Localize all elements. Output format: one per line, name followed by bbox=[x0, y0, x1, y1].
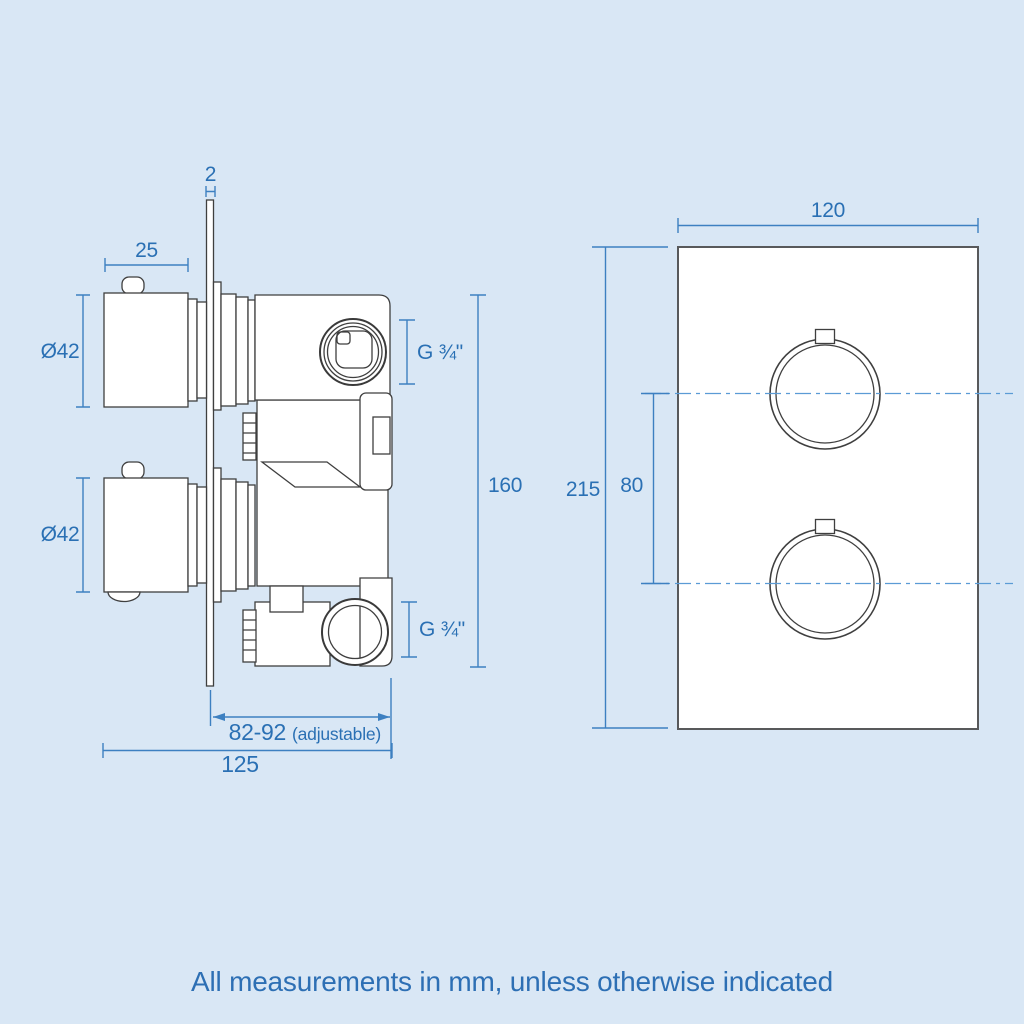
front-plate bbox=[678, 247, 978, 729]
wall-plate-side bbox=[207, 200, 214, 686]
dim-outlet-thread-top: G ¾" bbox=[399, 320, 463, 384]
bottom-escutcheon bbox=[214, 468, 222, 602]
dim-knob-diameter-bottom: Ø42 bbox=[41, 478, 90, 592]
threaded-adjuster-bottom bbox=[243, 610, 256, 662]
threaded-adjuster-top bbox=[243, 413, 256, 460]
dimension-drawing: 2 25 Ø42 Ø42 G ¾" G ¾" 160 bbox=[0, 0, 1024, 1024]
front-bottom-handle-tab bbox=[816, 520, 835, 534]
top-knob-button bbox=[122, 277, 144, 294]
dim-plate-thickness-value: 2 bbox=[205, 163, 216, 186]
dim-plate-width-value: 120 bbox=[811, 199, 845, 222]
dim-knob-diameter-top: Ø42 bbox=[41, 295, 90, 407]
front-top-handle-tab bbox=[816, 330, 835, 344]
outlet-port-bottom bbox=[322, 599, 388, 665]
top-escutcheon bbox=[214, 282, 222, 410]
dim-recess-depth-note: (adjustable) bbox=[292, 724, 381, 744]
dim-knob-diameter-bottom-value: Ø42 bbox=[41, 523, 80, 546]
dim-valve-height: 160 bbox=[470, 295, 522, 667]
dim-knob-depth-value: 25 bbox=[135, 239, 158, 262]
top-knob bbox=[104, 293, 188, 407]
top-knob-assembly bbox=[104, 277, 255, 410]
side-view-drawing: 2 25 Ø42 Ø42 G ¾" G ¾" 160 bbox=[41, 163, 523, 777]
dim-valve-height-value: 160 bbox=[488, 474, 522, 497]
dim-outlet-thread-top-value: G ¾" bbox=[417, 341, 463, 364]
front-view-drawing: 120 215 80 bbox=[566, 199, 1013, 729]
dim-knob-diameter-top-value: Ø42 bbox=[41, 340, 80, 363]
dim-handle-spacing: 80 bbox=[620, 394, 669, 584]
dim-handle-spacing-value: 80 bbox=[620, 474, 643, 497]
dim-overall-depth-value: 125 bbox=[221, 751, 258, 777]
measurements-note: All measurements in mm, unless otherwise… bbox=[0, 966, 1024, 998]
dim-outlet-thread-bottom-value: G ¾" bbox=[419, 618, 465, 641]
bottom-knob-button bbox=[122, 462, 144, 479]
mounting-bracket bbox=[360, 393, 392, 490]
outlet-port-top bbox=[320, 319, 386, 385]
dim-outlet-thread-bottom: G ¾" bbox=[401, 602, 465, 657]
dim-overall-depth: 125 bbox=[103, 743, 392, 777]
dim-plate-width: 120 bbox=[678, 199, 978, 233]
dim-recess-depth-value: 82-92 bbox=[229, 719, 286, 745]
dim-knob-depth: 25 bbox=[105, 239, 188, 272]
dim-plate-height: 215 bbox=[566, 247, 668, 728]
valve-body bbox=[243, 295, 392, 666]
dim-plate-thickness: 2 bbox=[205, 163, 216, 197]
dim-plate-height-value: 215 bbox=[566, 478, 600, 501]
bottom-knob-assembly bbox=[104, 462, 255, 602]
bottom-knob bbox=[104, 478, 188, 592]
body-lug bbox=[270, 586, 303, 612]
bottom-knob-lug bbox=[108, 592, 140, 602]
technical-drawing-page: 2 25 Ø42 Ø42 G ¾" G ¾" 160 bbox=[0, 0, 1024, 1024]
dim-recess-depth: 82-92 (adjustable) bbox=[211, 678, 392, 759]
